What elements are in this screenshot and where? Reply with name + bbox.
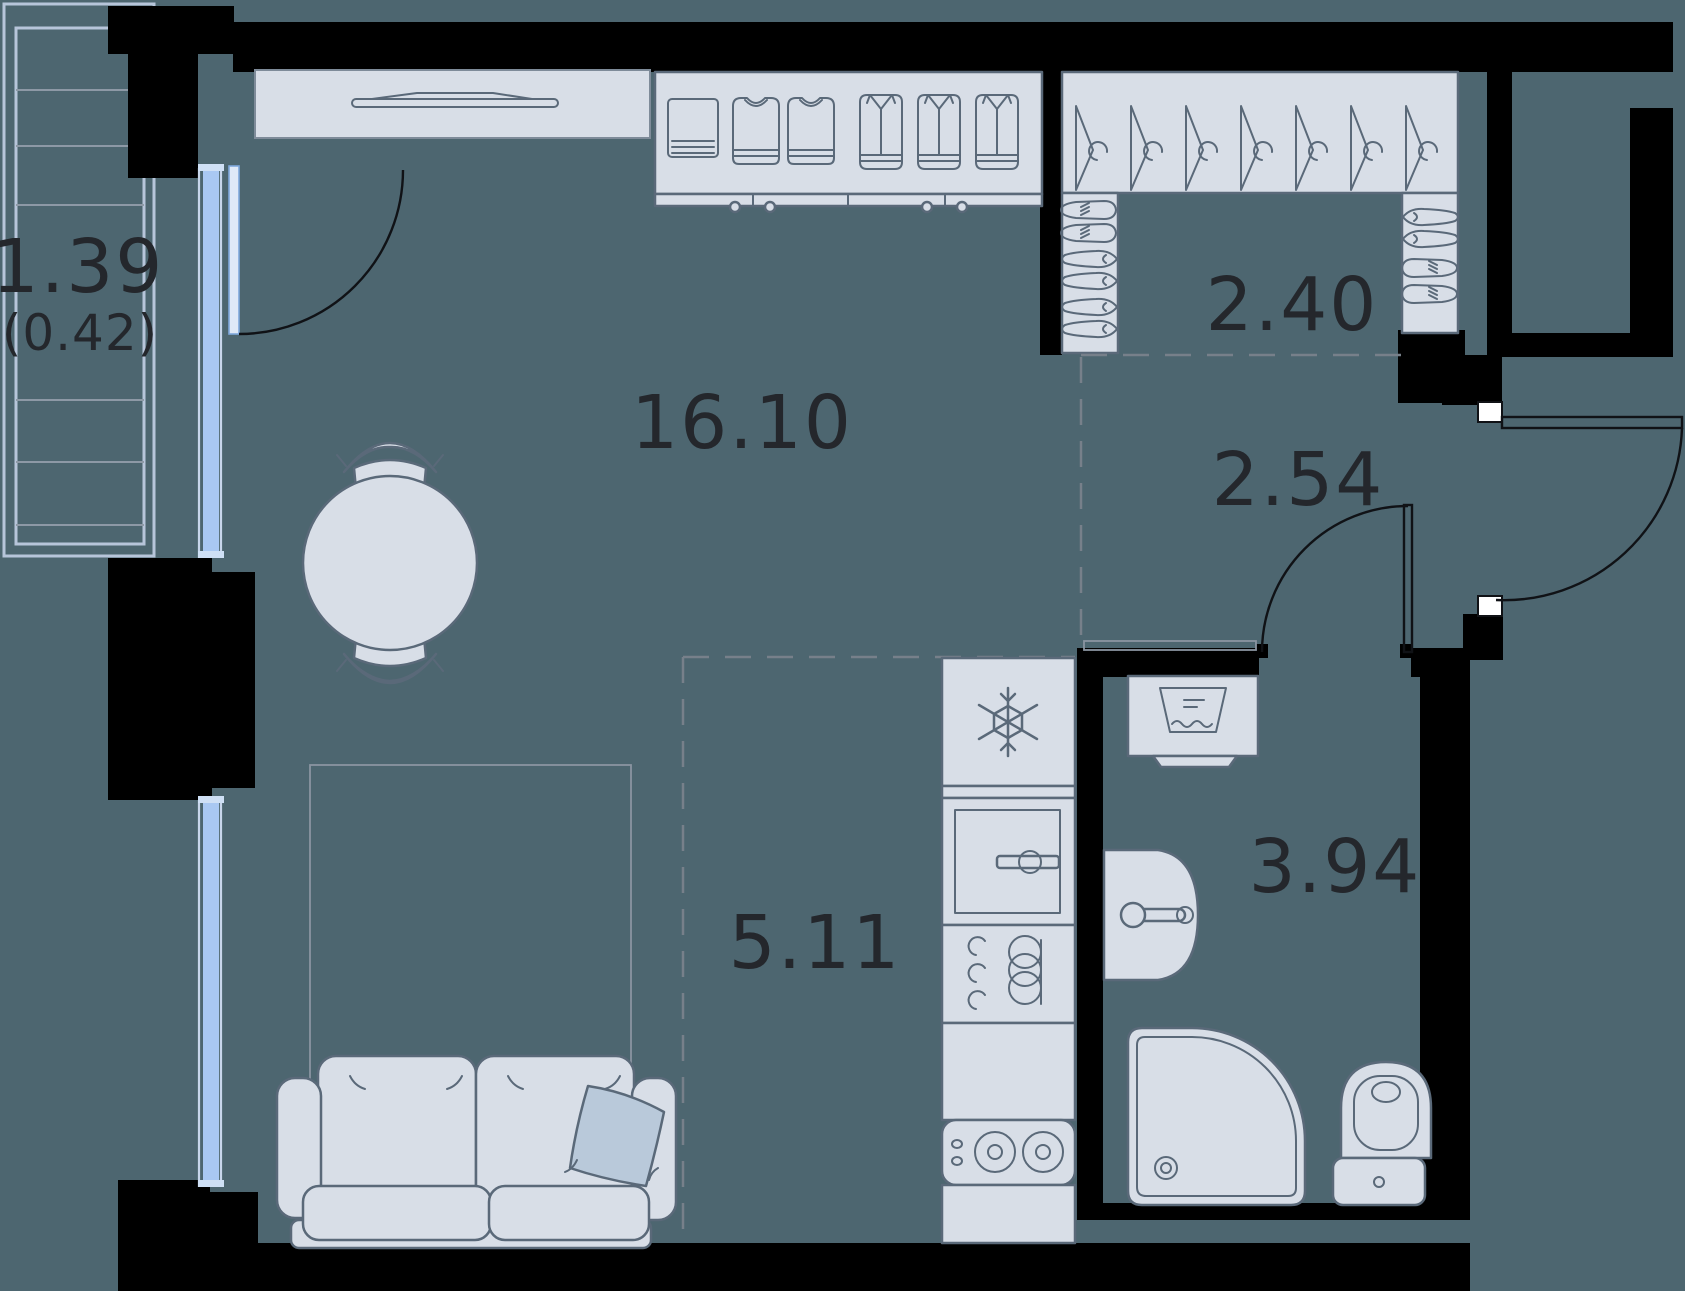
hallway-area-label: 2.54 bbox=[1212, 437, 1385, 523]
entrance-door-jamb-top bbox=[1478, 402, 1502, 422]
drawer-knob bbox=[765, 202, 775, 212]
sofa bbox=[277, 1056, 676, 1248]
closet-hanger-rail bbox=[1062, 72, 1458, 193]
bathroom-area-label: 3.94 bbox=[1249, 824, 1422, 910]
window-pillar bbox=[108, 558, 212, 800]
balcony-door-leaf bbox=[229, 166, 239, 334]
oven bbox=[942, 798, 1075, 925]
tv-console bbox=[255, 70, 650, 138]
drawer-knob bbox=[957, 202, 967, 212]
living-room-area-label: 16.10 bbox=[631, 380, 853, 466]
kitchen-counter bbox=[942, 1023, 1075, 1120]
closet-shoe-shelf-left bbox=[1061, 193, 1118, 353]
floor-plan-canvas: 1.39 (0.42) 16.10 2.40 2.54 5.11 3.94 bbox=[0, 0, 1685, 1291]
shaft-right-wall bbox=[1630, 108, 1673, 357]
kitchen-appliances bbox=[942, 658, 1075, 1243]
round-table bbox=[303, 476, 477, 650]
wardrobe-shelves bbox=[655, 72, 1042, 212]
kitchen-counter-end bbox=[942, 1185, 1075, 1243]
dish-cabinet bbox=[942, 925, 1075, 1023]
shaft-bottom-wall bbox=[1487, 333, 1673, 357]
kitchen-area-label: 5.11 bbox=[729, 900, 902, 986]
sofa-back-cushion bbox=[318, 1056, 476, 1202]
closet-area-label: 2.40 bbox=[1206, 262, 1379, 348]
sofa-seat-cushion bbox=[303, 1186, 491, 1240]
shaft-left-wall bbox=[1487, 72, 1512, 357]
faucet-icon bbox=[1121, 903, 1145, 927]
cooktop bbox=[942, 1120, 1075, 1185]
balcony-area-label: 1.39 bbox=[0, 224, 164, 310]
floor-plan: 1.39 (0.42) 16.10 2.40 2.54 5.11 3.94 bbox=[0, 0, 1685, 1291]
bathroom-sink bbox=[1104, 850, 1198, 980]
drawer-knob bbox=[730, 202, 740, 212]
balcony-area-secondary-label: (0.42) bbox=[2, 304, 158, 362]
toilet bbox=[1333, 1062, 1431, 1205]
closet-shoe-shelf-right bbox=[1402, 193, 1458, 333]
washing-machine bbox=[1128, 676, 1258, 767]
sofa-seat-cushion bbox=[489, 1186, 649, 1240]
drawer-knob bbox=[922, 202, 932, 212]
